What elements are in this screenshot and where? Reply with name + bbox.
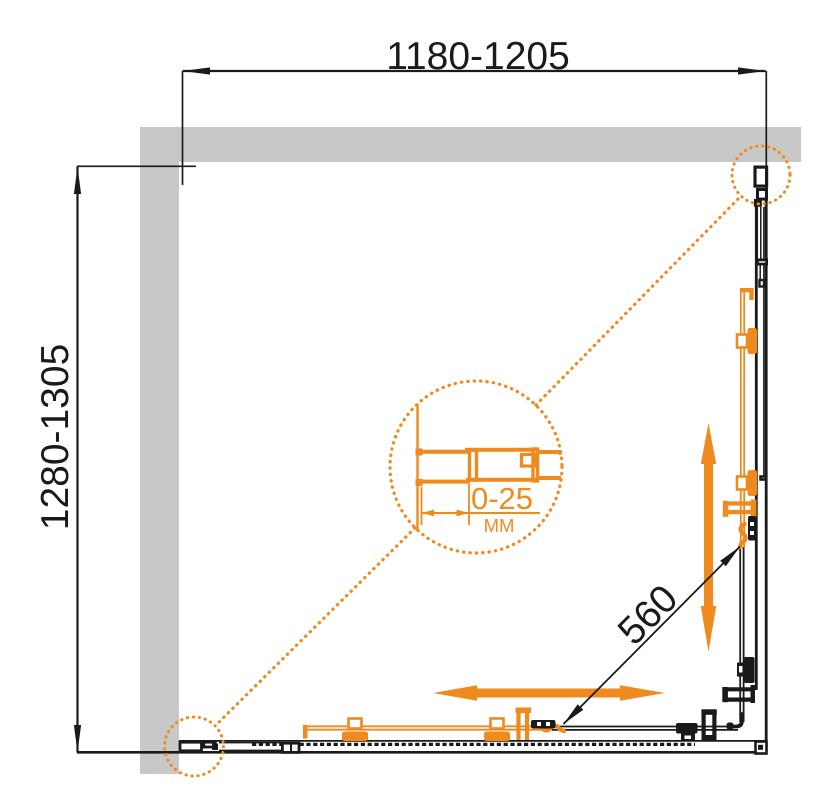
- svg-text:MM: MM: [484, 515, 515, 536]
- svg-text:1280-1305: 1280-1305: [34, 344, 77, 531]
- svg-text:1180-1205: 1180-1205: [386, 35, 570, 78]
- svg-text:0-25: 0-25: [471, 481, 533, 516]
